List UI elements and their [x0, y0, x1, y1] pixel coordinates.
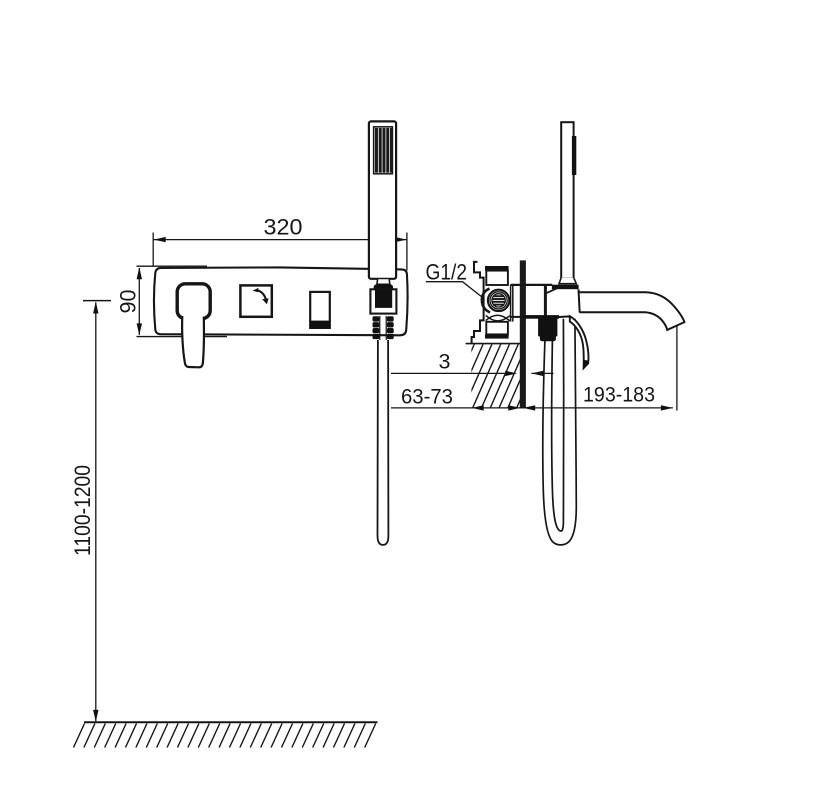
svg-text:320: 320	[264, 215, 303, 240]
svg-text:1100-1200: 1100-1200	[70, 465, 95, 556]
svg-text:G1/2: G1/2	[426, 260, 468, 285]
svg-text:3: 3	[439, 349, 451, 373]
svg-text:63-73: 63-73	[401, 385, 453, 409]
svg-text:90: 90	[116, 290, 141, 314]
svg-text:193-183: 193-183	[583, 382, 655, 406]
